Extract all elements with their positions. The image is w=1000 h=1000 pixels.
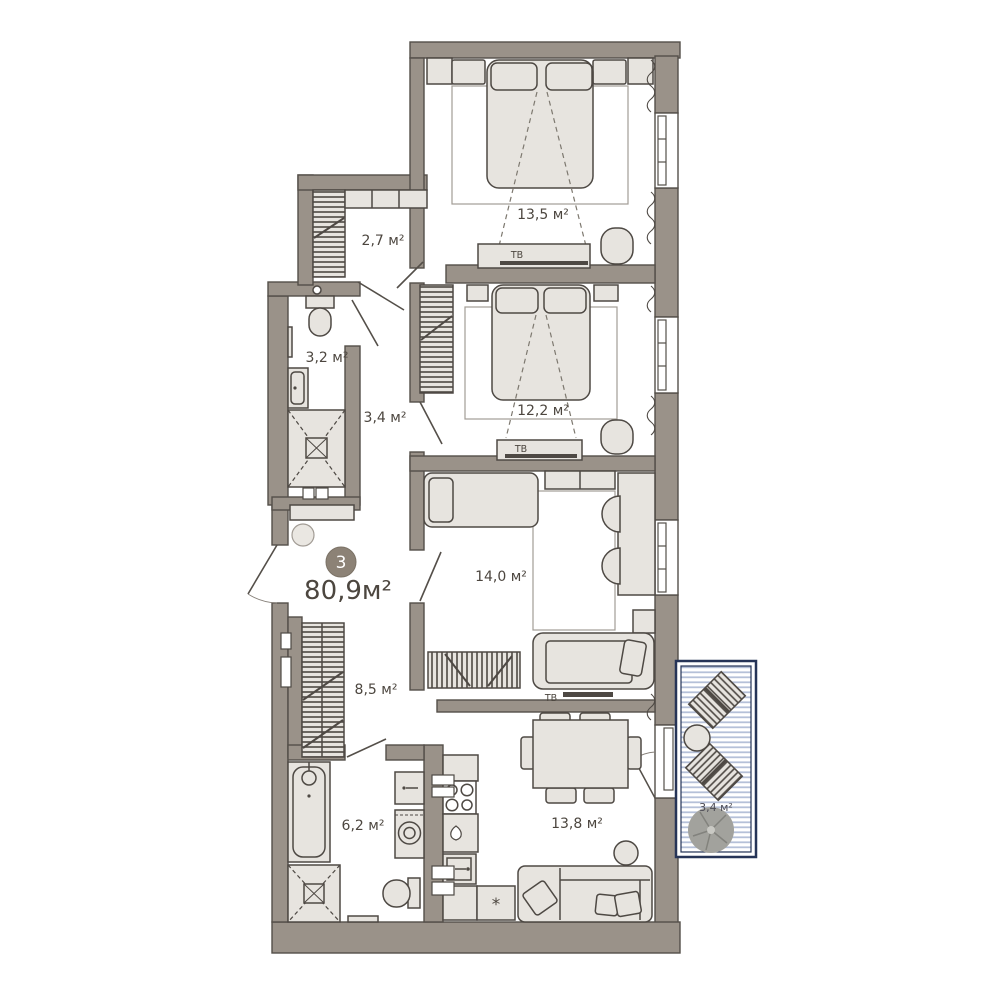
appliance-mark: * <box>492 895 501 915</box>
niche <box>281 633 291 649</box>
area-label-bedroom-1: 13,5 м² <box>517 207 569 223</box>
nightstand <box>467 285 488 301</box>
tv-label-bedroom-1: ТВ <box>510 250 523 261</box>
area-label-bathroom-1: 3,2 м² <box>306 350 349 366</box>
desk <box>618 473 655 595</box>
chair <box>627 737 641 769</box>
floor-plan-drawing: 13,5 м² 2,7 м² 3,2 м² 3,4 м² 12,2 м² 14,… <box>0 0 1000 1000</box>
shelves <box>345 190 427 208</box>
shower <box>288 410 345 487</box>
balcony-table <box>684 725 710 751</box>
area-label-bedroom-2: 12,2 м² <box>517 403 569 419</box>
armchair <box>601 420 633 454</box>
nightstand <box>452 60 485 84</box>
wardrobe <box>420 285 453 393</box>
toilet <box>309 308 331 336</box>
chair <box>546 788 576 803</box>
entrance-door <box>248 545 277 603</box>
toilet <box>383 878 420 908</box>
vent-box <box>432 787 454 797</box>
total-area: 80,9м² <box>304 576 392 606</box>
shower <box>288 865 340 922</box>
floor-plan: 13,5 м² 2,7 м² 3,2 м² 3,4 м² 12,2 м² 14,… <box>0 0 1000 1000</box>
chair <box>584 788 614 803</box>
kitchen-sink-cabinet <box>443 814 478 852</box>
pillow <box>546 63 592 90</box>
nightstand <box>594 285 618 301</box>
niche <box>281 657 291 687</box>
rooms-count-badge: 3 <box>326 547 356 577</box>
washing-machine <box>395 810 424 858</box>
toilet-tank <box>306 296 334 308</box>
window-bedroom-2 <box>655 317 678 393</box>
armchair <box>601 228 633 264</box>
rooms-count: 3 <box>336 553 347 573</box>
area-label-wardrobe-room: 2,7 м² <box>362 233 405 249</box>
vent-box <box>432 882 454 895</box>
tv-label-kids-room: ТВ <box>544 693 557 704</box>
hall-wardrobe <box>302 623 344 757</box>
bathtub <box>288 762 330 862</box>
area-label-kids-room: 14,0 м² <box>475 569 527 585</box>
tv-screen <box>563 692 613 697</box>
side-table <box>614 841 638 865</box>
area-label-hallway-1: 3,4 м² <box>364 410 407 426</box>
mat <box>348 916 378 922</box>
area-label-balcony: 3,4 м² <box>699 801 733 814</box>
dining-table <box>533 720 628 788</box>
pillow <box>496 288 538 313</box>
console-cabinet <box>290 505 354 520</box>
pillow <box>429 478 453 522</box>
towel-rail <box>288 327 292 357</box>
nightstand <box>593 60 626 84</box>
wardrobe <box>313 190 345 277</box>
tv-screen <box>500 261 588 265</box>
area-label-living-kitchen: 13,8 м² <box>551 816 603 832</box>
window-bedroom-1 <box>655 113 678 188</box>
round-rug <box>292 524 314 546</box>
window-kids-room <box>655 520 678 595</box>
vent-box <box>432 775 454 785</box>
cabinet <box>633 610 655 633</box>
pillow <box>544 288 586 313</box>
balcony <box>676 661 756 857</box>
area-label-bathroom-2: 6,2 м² <box>342 818 385 834</box>
corner-sofa <box>518 866 652 922</box>
tv-label-bedroom-2: ТВ <box>514 444 527 455</box>
area-label-hallway-2: 8,5 м² <box>355 682 398 698</box>
cushion <box>614 891 641 917</box>
pillow <box>491 63 537 90</box>
bookshelf <box>428 652 520 688</box>
flush-button <box>313 286 321 294</box>
vent-box <box>432 866 454 879</box>
